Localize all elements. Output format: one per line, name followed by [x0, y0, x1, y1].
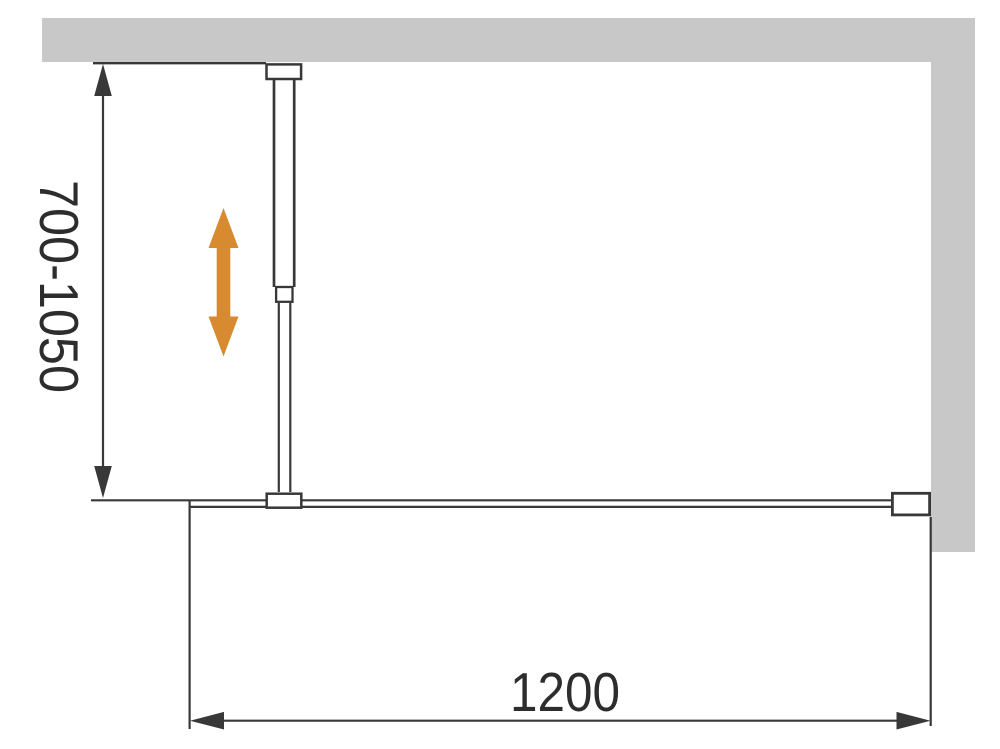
svg-text:700-1050: 700-1050 — [28, 180, 90, 393]
svg-text:1200: 1200 — [510, 661, 620, 723]
